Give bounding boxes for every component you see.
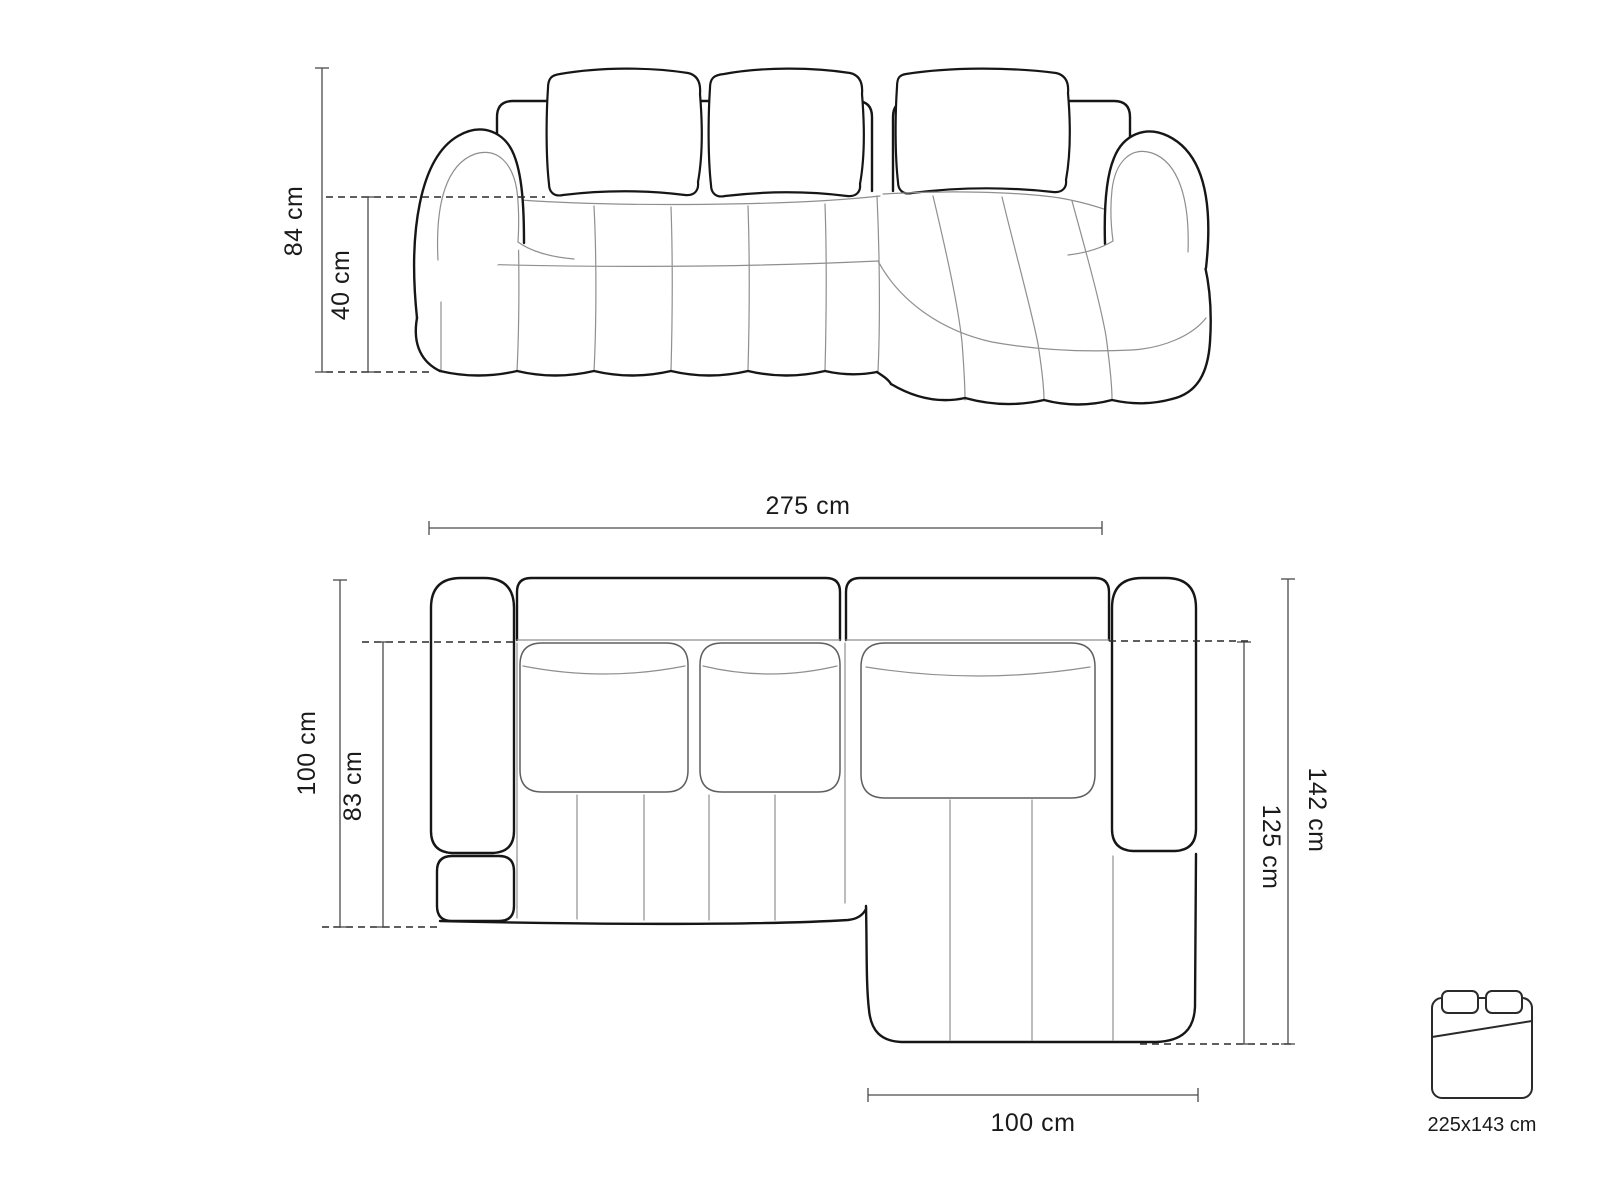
top-plan-view: 275 cm 100 cm 83 cm 142 cm 1: [293, 492, 1331, 1137]
dimension-chaise-inner-depth: 125 cm: [1237, 642, 1285, 1044]
sofa-bed-icon: [1432, 991, 1532, 1098]
plan-right-armrest: [1112, 578, 1196, 851]
plan-seat-front-edge: [440, 909, 866, 924]
right-armrest: [1068, 132, 1208, 269]
dimension-seat-depth: 83 cm: [339, 642, 390, 927]
dimension-overall-width: 275 cm: [429, 492, 1102, 535]
plan-left-armrest: [431, 578, 514, 853]
sofa-dimension-diagram: 84 cm 40 cm: [0, 0, 1600, 1200]
back-cushion-middle: [709, 69, 864, 197]
seat-outline: [416, 266, 1211, 405]
sleeping-size-label: 225x143 cm: [1428, 1114, 1537, 1136]
dimension-seat-height: 40 cm: [327, 197, 375, 372]
sofa-front-drawing: [414, 69, 1211, 405]
dimension-drawing-page: 84 cm 40 cm: [0, 0, 1600, 1200]
dimension-overall-height: 84 cm: [280, 68, 329, 372]
body-depth-label: 100 cm: [293, 711, 321, 796]
plan-seat-cushions: [520, 643, 1095, 798]
chaise-total-depth-label: 142 cm: [1303, 768, 1331, 853]
overall-height-label: 84 cm: [280, 186, 308, 257]
plan-chaise-outline: [866, 854, 1196, 1042]
overall-width-label: 275 cm: [766, 492, 851, 520]
dimension-chaise-total-depth: 142 cm: [1281, 579, 1331, 1044]
chaise-inner-depth-label: 125 cm: [1257, 805, 1285, 890]
seat-seam-lines: [418, 192, 1206, 400]
chaise-width-label: 100 cm: [991, 1109, 1076, 1137]
sofa-plan-drawing: [431, 578, 1196, 1042]
plan-backrest-right: [846, 578, 1109, 640]
back-cushion-right: [896, 69, 1070, 194]
sleeping-area-info: 225x143 cm: [1428, 991, 1537, 1136]
back-cushion-left: [547, 69, 702, 196]
front-elevation-view: 84 cm 40 cm: [280, 68, 1211, 405]
seat-depth-label: 83 cm: [339, 751, 367, 822]
plan-left-front-module: [437, 856, 514, 921]
dimension-chaise-width: 100 cm: [868, 1088, 1198, 1137]
seat-height-label: 40 cm: [327, 250, 355, 321]
plan-backrest-left: [517, 578, 840, 640]
